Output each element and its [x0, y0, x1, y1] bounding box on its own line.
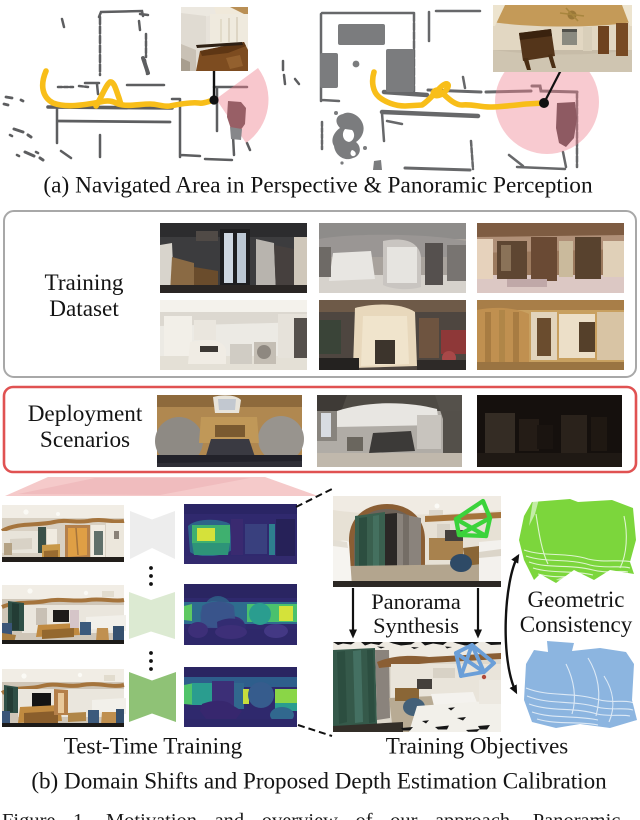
svg-text:Panorama: Panorama — [371, 589, 461, 614]
svg-text:Figure 1. Motivation and overv: Figure 1. Motivation and overview of our… — [2, 810, 620, 820]
svg-text:(a) Navigated Area in Perspect: (a) Navigated Area in Perspective & Pano… — [43, 173, 593, 199]
svg-text:(b) Domain Shifts and Proposed: (b) Domain Shifts and Proposed Depth Est… — [31, 768, 607, 794]
svg-text:Synthesis: Synthesis — [373, 613, 459, 638]
svg-text:Dataset: Dataset — [49, 296, 119, 322]
svg-text:Consistency: Consistency — [520, 612, 633, 637]
svg-text:Training Objectives: Training Objectives — [386, 734, 569, 759]
svg-text:Scenarios: Scenarios — [40, 427, 130, 453]
svg-text:Geometric: Geometric — [527, 587, 624, 612]
svg-text:Test-Time Training: Test-Time Training — [64, 734, 243, 760]
svg-text:Deployment: Deployment — [28, 401, 143, 427]
svg-text:Training: Training — [44, 270, 123, 296]
